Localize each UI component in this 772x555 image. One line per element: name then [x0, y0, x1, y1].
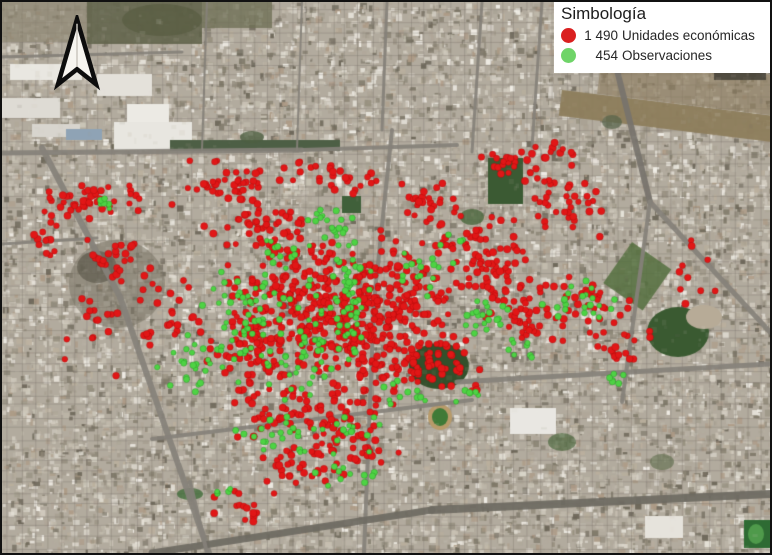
satellite-basemap — [2, 2, 770, 553]
legend-panel: Simbología 1 490 Unidades económicas 454… — [554, 2, 770, 73]
unidades-economicas-dot-icon — [561, 28, 576, 43]
legend-item-unidades-economicas: 1 490 Unidades económicas — [561, 25, 766, 45]
legend-item-observaciones: 454 Observaciones — [561, 45, 766, 65]
legend-count-observaciones: 454 — [581, 48, 618, 63]
north-arrow-icon — [52, 15, 102, 91]
legend-title: Simbología — [561, 3, 766, 25]
observaciones-dot-icon — [561, 48, 576, 63]
legend-label-unidades: Unidades económicas — [622, 28, 755, 43]
legend-count-unidades: 1 490 — [581, 28, 618, 43]
map-figure: Simbología 1 490 Unidades económicas 454… — [0, 0, 772, 555]
legend-label-observaciones: Observaciones — [622, 48, 712, 63]
